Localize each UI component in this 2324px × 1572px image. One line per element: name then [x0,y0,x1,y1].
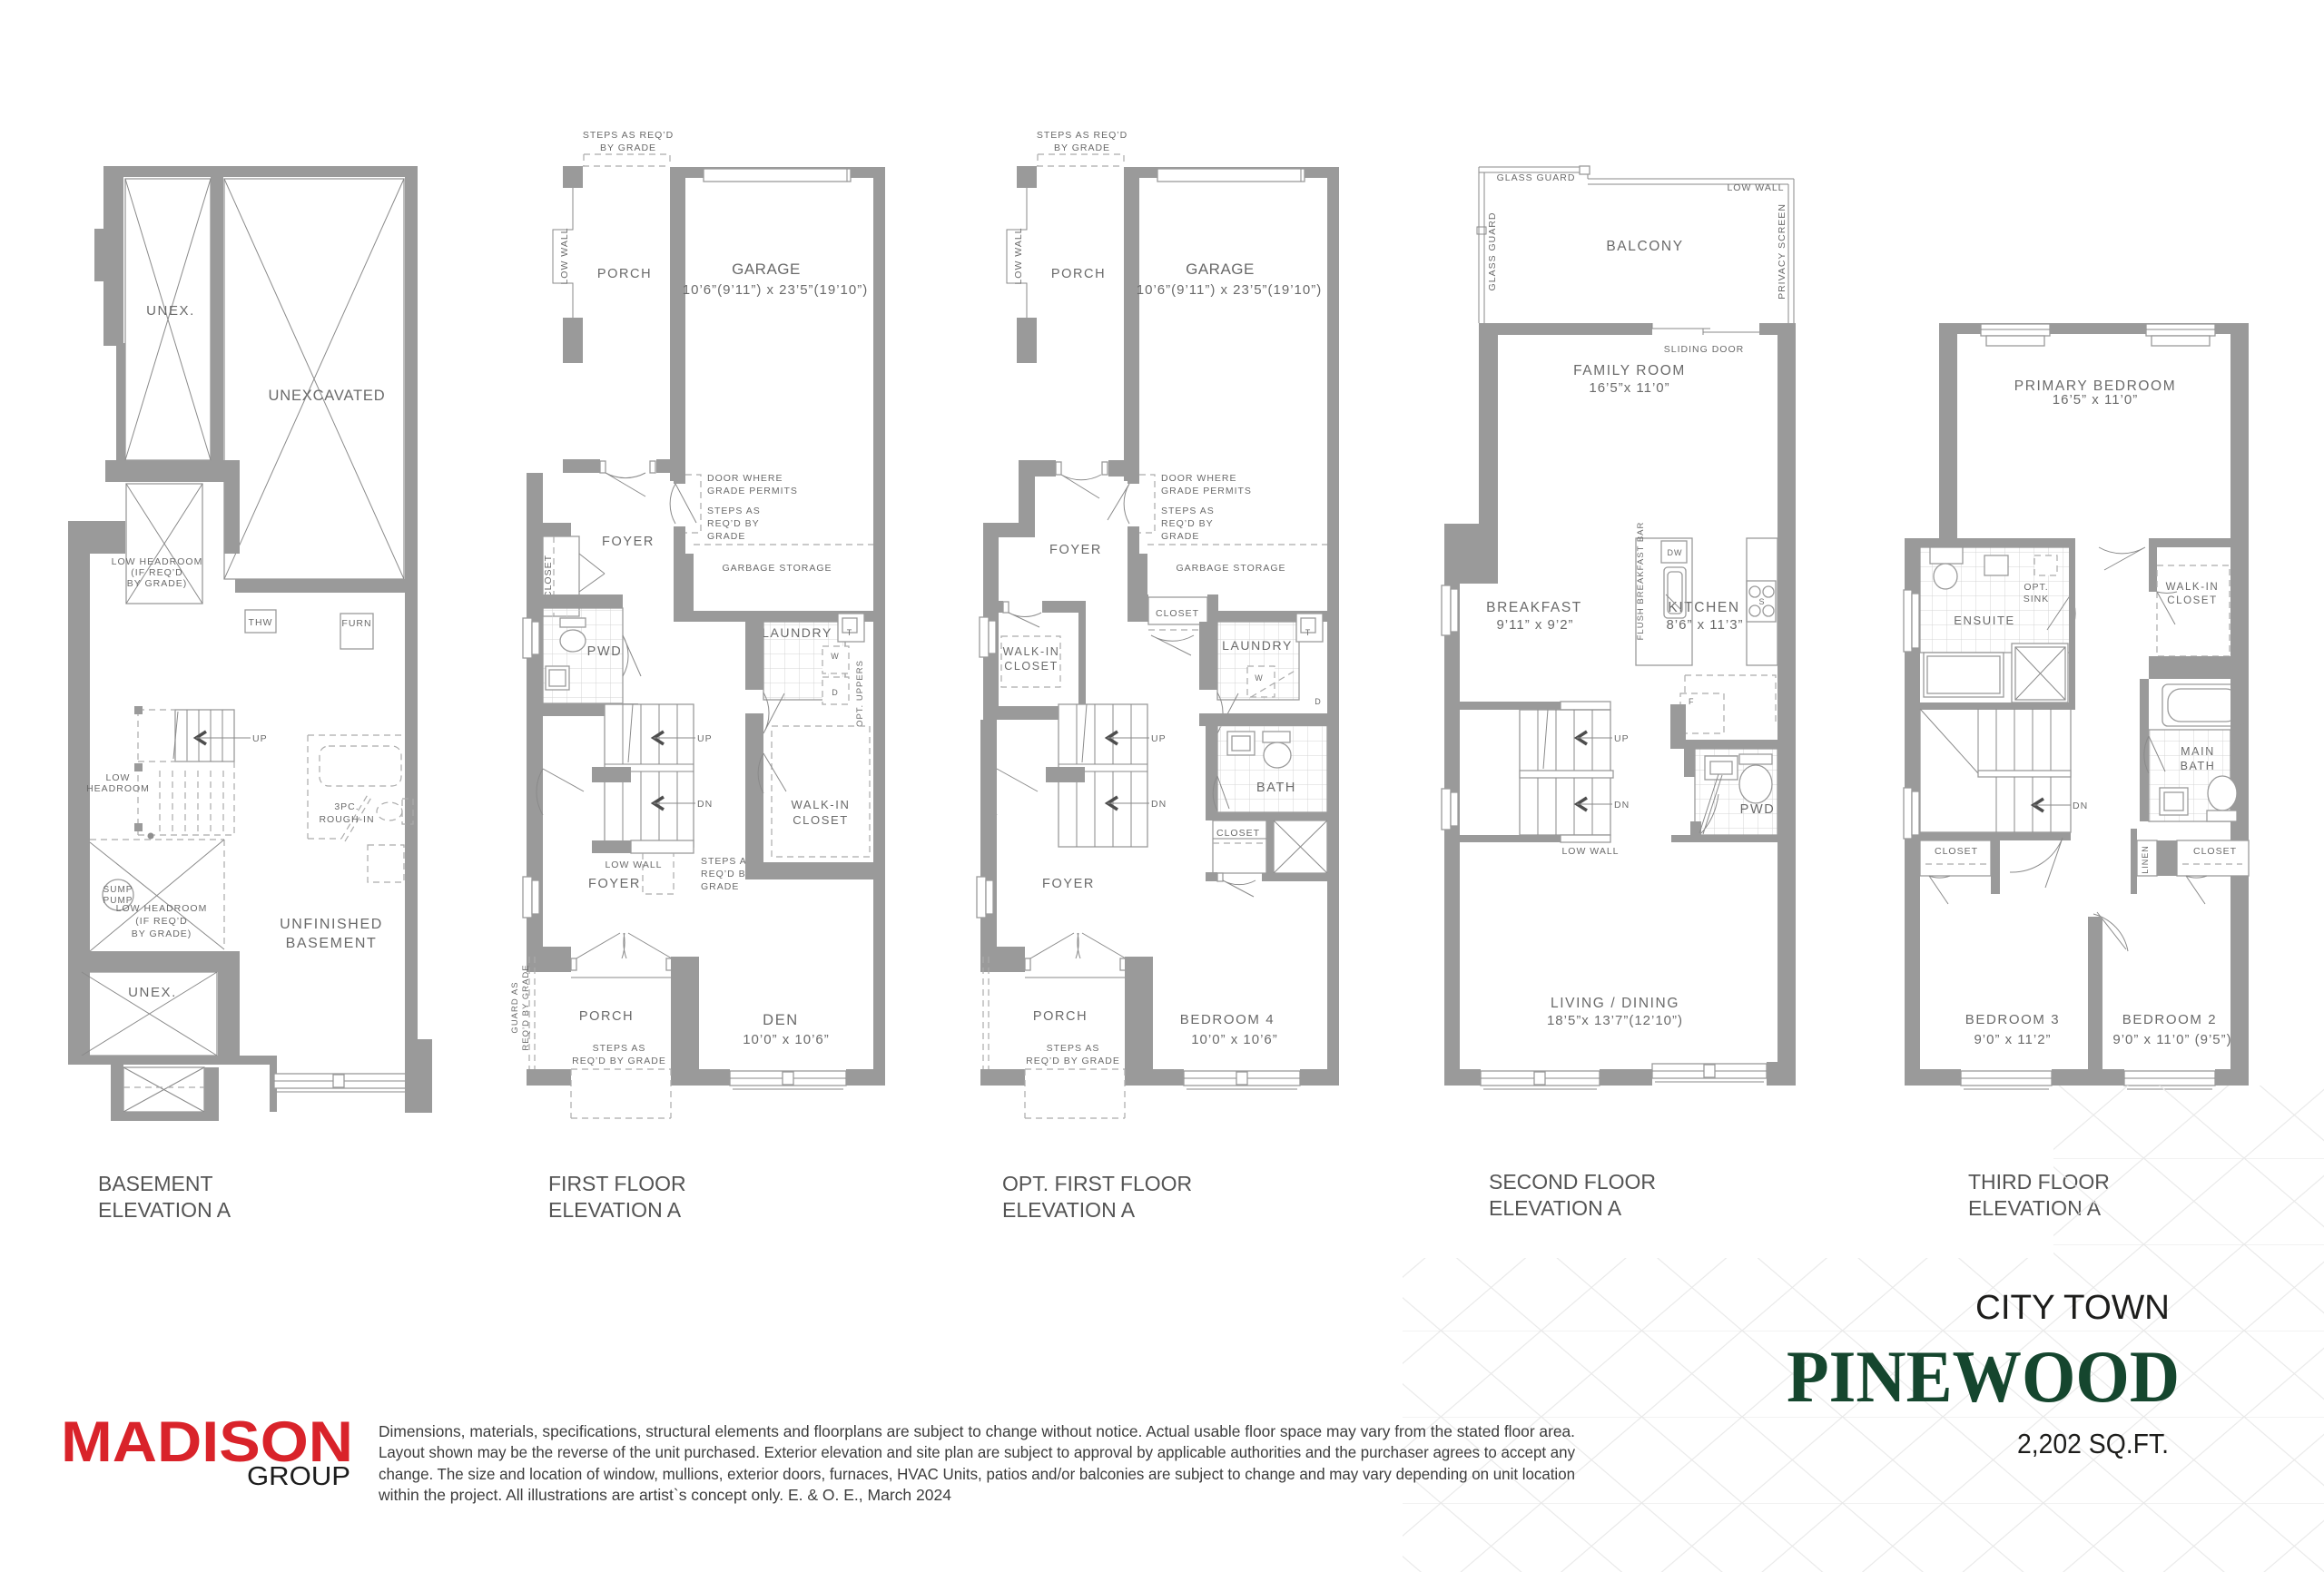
svg-text:BEDROOM 3: BEDROOM 3 [1965,1012,2060,1027]
svg-text:STEPS AS: STEPS AS [707,506,761,516]
svg-text:CLOSET: CLOSET [1216,828,1260,839]
svg-text:BASEMENT: BASEMENT [98,1172,213,1195]
svg-text:UP: UP [697,733,713,744]
svg-text:STEPS AS: STEPS AS [1047,1043,1100,1054]
svg-text:9’11” x 9’2”: 9’11” x 9’2” [1496,617,1573,633]
svg-text:FOYER: FOYER [588,877,641,891]
svg-text:CLOSET: CLOSET [793,813,849,827]
svg-text:Layout shown may be the revers: Layout shown may be the reverse of the u… [379,1443,1575,1461]
svg-text:S: S [1758,597,1765,606]
svg-text:OPT.: OPT. [2024,582,2048,593]
svg-text:(IF REQ’D: (IF REQ’D [131,567,182,578]
svg-text:DN: DN [1151,799,1167,810]
svg-text:ELEVATION A: ELEVATION A [98,1198,231,1222]
svg-text:D: D [1315,697,1322,706]
svg-text:LAUNDRY: LAUNDRY [762,625,832,640]
svg-text:FURN: FURN [341,618,371,629]
svg-text:10’6”(9’11”) x 23’5”(19’10”): 10’6”(9’11”) x 23’5”(19’10”) [683,282,868,298]
svg-text:CLOSET: CLOSET [1935,846,1978,857]
svg-text:Dimensions, materials, specifi: Dimensions, materials, specifications, s… [379,1422,1575,1440]
svg-text:ROUGH-IN: ROUGH-IN [319,814,374,825]
svg-text:GRADE: GRADE [1161,531,1199,542]
svg-text:UP: UP [1614,733,1630,744]
svg-text:CLOSET: CLOSET [2167,595,2218,606]
svg-text:HEADROOM: HEADROOM [86,783,150,794]
svg-text:8’6” x 11’3”: 8’6” x 11’3” [1666,617,1743,633]
svg-text:BEDROOM 2: BEDROOM 2 [2122,1012,2217,1027]
svg-text:3PC.: 3PC. [334,801,359,812]
svg-text:PRIVACY SCREEN: PRIVACY SCREEN [1777,203,1787,300]
svg-text:9’0” x 11’0” (9’5”): 9’0” x 11’0” (9’5”) [2112,1032,2231,1047]
svg-text:PWD: PWD [587,644,623,659]
svg-text:DW: DW [1668,548,1683,557]
svg-text:BATH: BATH [1256,781,1296,795]
svg-text:10’6”(9’11”) x 23’5”(19’10”): 10’6”(9’11”) x 23’5”(19’10”) [1137,282,1322,298]
svg-text:LOW HEADROOM: LOW HEADROOM [116,903,208,914]
svg-text:STEPS AS REQ’D: STEPS AS REQ’D [583,130,674,141]
svg-text:16’5”x 11’0”: 16’5”x 11’0” [1589,380,1669,396]
svg-text:SLIDING DOOR: SLIDING DOOR [1664,344,1744,355]
svg-text:DOOR WHERE: DOOR WHERE [1161,473,1237,484]
svg-text:PORCH: PORCH [1051,267,1106,281]
svg-text:within the project. All illust: within the project. All illustrations ar… [378,1486,951,1504]
svg-text:GRADE PERMITS: GRADE PERMITS [1161,486,1252,496]
svg-text:SUMP: SUMP [103,885,133,895]
svg-text:REQ’D BY GRADE: REQ’D BY GRADE [572,1056,666,1066]
svg-text:LOW: LOW [106,772,131,783]
svg-text:GUARD AS: GUARD AS [510,981,520,1033]
svg-text:CLOSET: CLOSET [2193,846,2237,857]
svg-text:DEN: DEN [763,1012,799,1028]
svg-text:LOW WALL: LOW WALL [605,860,662,870]
svg-text:UNEX.: UNEX. [128,985,177,1000]
svg-text:GARAGE: GARAGE [732,260,801,278]
svg-text:F: F [1689,697,1695,706]
svg-text:UP: UP [252,733,268,744]
svg-text:GRADE: GRADE [701,881,739,892]
svg-text:LIVING / DINING: LIVING / DINING [1551,996,1679,1011]
svg-text:GLASS GUARD: GLASS GUARD [1487,212,1498,291]
svg-text:STEPS AS REQ’D: STEPS AS REQ’D [1037,130,1128,141]
svg-text:PWD: PWD [1740,802,1776,817]
svg-text:GRADE PERMITS: GRADE PERMITS [707,486,798,496]
svg-text:LAUNDRY: LAUNDRY [1222,638,1293,653]
svg-text:BEDROOM 4: BEDROOM 4 [1180,1012,1275,1027]
svg-text:GLASS GUARD: GLASS GUARD [1497,172,1576,183]
svg-text:FAMILY ROOM: FAMILY ROOM [1573,363,1686,378]
svg-text:16’5” x 11’0”: 16’5” x 11’0” [2053,392,2138,408]
svg-text:GARBAGE STORAGE: GARBAGE STORAGE [723,563,832,574]
svg-text:ELEVATION A: ELEVATION A [1489,1196,1622,1220]
svg-text:WALK-IN: WALK-IN [792,798,851,811]
svg-text:FIRST FLOOR: FIRST FLOOR [548,1172,686,1195]
svg-text:FLUSH BREAKFAST BAR: FLUSH BREAKFAST BAR [1636,522,1646,641]
svg-text:PORCH: PORCH [579,1009,634,1024]
svg-text:ELEVATION A: ELEVATION A [1002,1198,1136,1222]
svg-text:CITY TOWN: CITY TOWN [1975,1289,2170,1327]
svg-text:STEPS AS: STEPS AS [593,1043,646,1054]
svg-text:LOW WALL: LOW WALL [1013,227,1024,284]
svg-text:SINK: SINK [2024,594,2050,604]
svg-text:W: W [1255,673,1264,683]
svg-text:LOW WALL: LOW WALL [1727,182,1784,193]
svg-text:UP: UP [1151,733,1167,744]
svg-text:T: T [1305,628,1312,637]
svg-text:GARAGE: GARAGE [1186,260,1255,278]
svg-text:REQ’D BY GRADE: REQ’D BY GRADE [521,964,531,1050]
svg-text:18’5”x 13’7”(12’10”): 18’5”x 13’7”(12’10”) [1547,1013,1683,1028]
svg-text:PINEWOOD: PINEWOOD [1787,1335,2180,1418]
svg-text:CLOSET: CLOSET [1004,660,1059,673]
svg-text:UNFINISHED: UNFINISHED [280,917,383,932]
svg-text:T: T [847,628,853,637]
svg-text:BY GRADE): BY GRADE) [132,928,192,939]
svg-text:REQ’D BY: REQ’D BY [701,869,753,879]
svg-text:OPT. FIRST FLOOR: OPT. FIRST FLOOR [1002,1172,1192,1195]
svg-text:2,202 SQ.FT.: 2,202 SQ.FT. [2017,1428,2169,1459]
svg-text:DN: DN [2073,801,2088,811]
svg-text:GARBAGE STORAGE: GARBAGE STORAGE [1177,563,1286,574]
svg-text:LOW WALL: LOW WALL [1561,846,1619,857]
svg-text:LOW WALL: LOW WALL [559,227,570,284]
svg-text:DOOR WHERE: DOOR WHERE [707,473,783,484]
svg-text:change. The size and location: change. The size and location of window,… [379,1465,1575,1483]
svg-text:10’0” x 10’6”: 10’0” x 10’6” [743,1032,830,1047]
svg-text:ENSUITE: ENSUITE [1954,614,2015,627]
svg-text:CLOSET: CLOSET [543,555,554,598]
svg-text:REQ’D BY: REQ’D BY [1161,518,1214,529]
svg-text:STEPS AS: STEPS AS [1161,506,1215,516]
svg-text:BY GRADE: BY GRADE [600,142,656,153]
svg-text:FOYER: FOYER [1042,877,1095,891]
svg-text:GRADE: GRADE [707,531,745,542]
svg-text:DN: DN [1614,800,1630,811]
svg-text:10’0” x 10’6”: 10’0” x 10’6” [1191,1032,1278,1047]
svg-text:CLOSET: CLOSET [1156,608,1199,619]
svg-text:OPT. UPPERS: OPT. UPPERS [855,660,865,727]
svg-text:LOW HEADROOM: LOW HEADROOM [112,556,203,567]
svg-text:WALK-IN: WALK-IN [2166,582,2220,593]
svg-text:BY GRADE): BY GRADE) [127,578,188,589]
svg-text:ELEVATION A: ELEVATION A [548,1198,682,1222]
svg-text:REQ’D BY GRADE: REQ’D BY GRADE [1026,1056,1120,1066]
svg-text:UNEXCAVATED: UNEXCAVATED [269,388,386,404]
svg-text:PORCH: PORCH [1033,1009,1088,1024]
svg-text:BREAKFAST: BREAKFAST [1486,600,1582,615]
svg-text:BASEMENT: BASEMENT [286,936,378,951]
svg-text:BY GRADE: BY GRADE [1054,142,1110,153]
svg-text:FOYER: FOYER [1049,543,1102,557]
svg-text:9’0” x 11’2”: 9’0” x 11’2” [1974,1032,2051,1047]
svg-text:REQ’D BY: REQ’D BY [707,518,760,529]
svg-text:D: D [832,688,839,697]
svg-text:THW: THW [249,617,273,628]
svg-text:(IF REQ’D: (IF REQ’D [135,916,187,927]
svg-text:PORCH: PORCH [597,267,652,281]
svg-text:UNEX.: UNEX. [146,303,195,319]
svg-text:DN: DN [697,799,713,810]
svg-text:GROUP: GROUP [247,1462,350,1491]
svg-text:WALK-IN: WALK-IN [1003,645,1060,658]
svg-text:BALCONY: BALCONY [1606,239,1683,254]
svg-text:LINEN: LINEN [2141,845,2150,874]
svg-text:W: W [831,652,840,661]
svg-text:FOYER: FOYER [602,535,655,549]
svg-text:SECOND FLOOR: SECOND FLOOR [1489,1170,1656,1194]
